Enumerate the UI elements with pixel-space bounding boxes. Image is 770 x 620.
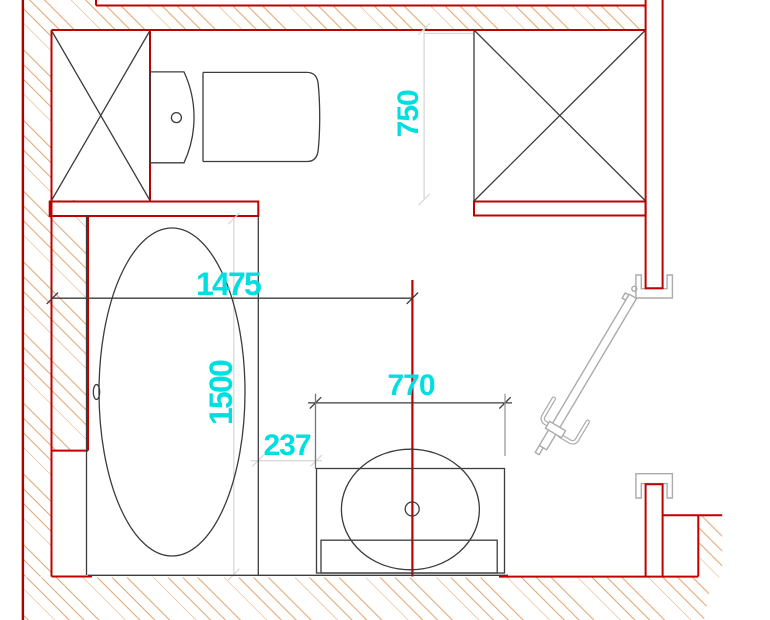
svg-text:1475: 1475 — [196, 266, 261, 302]
svg-text:1500: 1500 — [203, 360, 239, 425]
svg-text:750: 750 — [392, 90, 425, 137]
svg-text:237: 237 — [263, 429, 310, 462]
svg-text:770: 770 — [387, 369, 434, 402]
